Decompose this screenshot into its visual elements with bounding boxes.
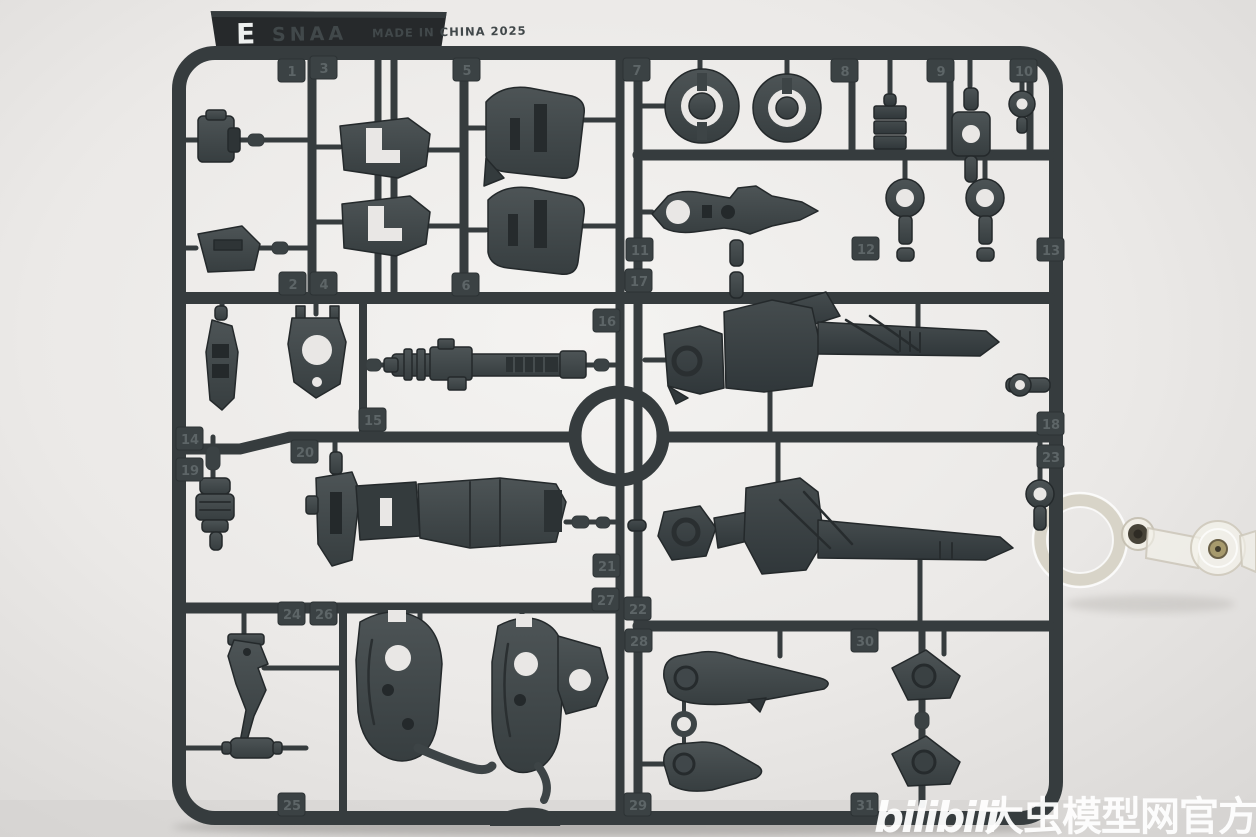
svg-text:7: 7 (632, 64, 641, 79)
part-number-tab: 6 (452, 273, 479, 296)
part-number-tab: 16 (593, 309, 620, 332)
part-number-tab: 15 (359, 408, 386, 431)
svg-text:26: 26 (315, 608, 333, 623)
part-connector-cylinder (222, 738, 282, 758)
svg-text:17: 17 (630, 275, 648, 290)
svg-text:23: 23 (1042, 451, 1060, 466)
svg-text:11: 11 (631, 244, 649, 259)
part-shield-top (484, 87, 584, 186)
part-number-tab: 17 (625, 269, 652, 292)
svg-text:6: 6 (461, 279, 470, 294)
studio-backdrop (0, 0, 1256, 837)
part-number-tab: 11 (626, 238, 653, 261)
part-number-tab: 2 (279, 272, 306, 295)
part-number-tab: 8 (831, 59, 858, 82)
svg-text:31: 31 (856, 799, 874, 814)
part-armor-wedge-bottom (342, 196, 430, 256)
part-bracket (288, 306, 346, 398)
part-number-tab: 29 (624, 793, 651, 816)
svg-text:14: 14 (181, 433, 199, 448)
part-number-tab: 22 (624, 597, 651, 620)
svg-text:12: 12 (857, 243, 875, 258)
watermark: bilibili 大虫模型网官方 (874, 793, 1256, 837)
part-number-tab: 23 (1037, 445, 1064, 468)
tag-letter: E (236, 17, 256, 50)
part-number-tab: 25 (278, 793, 305, 816)
svg-text:2: 2 (288, 278, 297, 293)
part-elbow-link (1006, 374, 1050, 396)
svg-text:25: 25 (283, 799, 301, 814)
part-shield-bottom (488, 187, 584, 274)
part-number-tab: 30 (851, 629, 878, 652)
svg-text:19: 19 (181, 464, 199, 479)
svg-text:13: 13 (1042, 244, 1060, 259)
svg-text:8: 8 (840, 65, 849, 80)
svg-text:22: 22 (629, 603, 647, 618)
part-number-tab: 9 (927, 59, 954, 82)
part-number-tab: 7 (623, 58, 650, 81)
part-number-tab: 13 (1037, 238, 1064, 261)
svg-text:4: 4 (319, 278, 328, 293)
stand-gold-screw-joint (1191, 521, 1245, 575)
part-disc-right (753, 74, 821, 142)
svg-text:21: 21 (598, 560, 616, 575)
svg-text:27: 27 (597, 594, 615, 609)
part-number-tab: 18 (1037, 412, 1064, 435)
part-number-tab: 3 (310, 56, 337, 79)
svg-text:24: 24 (283, 608, 301, 623)
photo-model-kit-runner: E SNAA MADE IN CHINA 2025 (0, 0, 1256, 837)
svg-text:1: 1 (287, 65, 296, 80)
svg-text:18: 18 (1042, 418, 1060, 433)
part-number-tab: 4 (310, 272, 337, 295)
bilibili-logo: bilibili (874, 793, 1000, 837)
tag-made-in: MADE IN CHINA 2025 (372, 24, 527, 41)
part-number-tab: 20 (291, 440, 318, 463)
svg-text:28: 28 (630, 635, 648, 650)
svg-text:15: 15 (364, 414, 382, 429)
svg-text:20: 20 (296, 446, 314, 461)
part-armor-wedge-top (340, 118, 430, 178)
part-number-tab: 10 (1010, 59, 1037, 82)
tag-code: SNAA (272, 23, 347, 46)
svg-text:30: 30 (856, 635, 874, 650)
part-number-tab: 28 (625, 629, 652, 652)
svg-text:9: 9 (936, 65, 945, 80)
part-number-tab: 14 (176, 427, 203, 450)
svg-text:3: 3 (319, 62, 328, 77)
part-clamp-top (198, 110, 240, 162)
part-number-tab: 19 (176, 458, 203, 481)
svg-text:29: 29 (629, 799, 647, 814)
part-number-tab: 27 (592, 588, 619, 611)
part-disc-left (665, 69, 739, 143)
svg-text:16: 16 (598, 315, 616, 330)
part-number-tab: 21 (593, 554, 620, 577)
svg-text:10: 10 (1015, 65, 1033, 80)
part-number-tab: 5 (453, 58, 480, 81)
watermark-site-name: 大虫模型网官方 (984, 794, 1256, 837)
part-number-tab: 1 (278, 59, 305, 82)
part-number-tab: 24 (278, 602, 305, 625)
part-forearm (356, 478, 566, 548)
svg-text:5: 5 (462, 64, 471, 79)
part-number-tab: 26 (310, 602, 337, 625)
part-number-tab: 12 (852, 237, 879, 260)
